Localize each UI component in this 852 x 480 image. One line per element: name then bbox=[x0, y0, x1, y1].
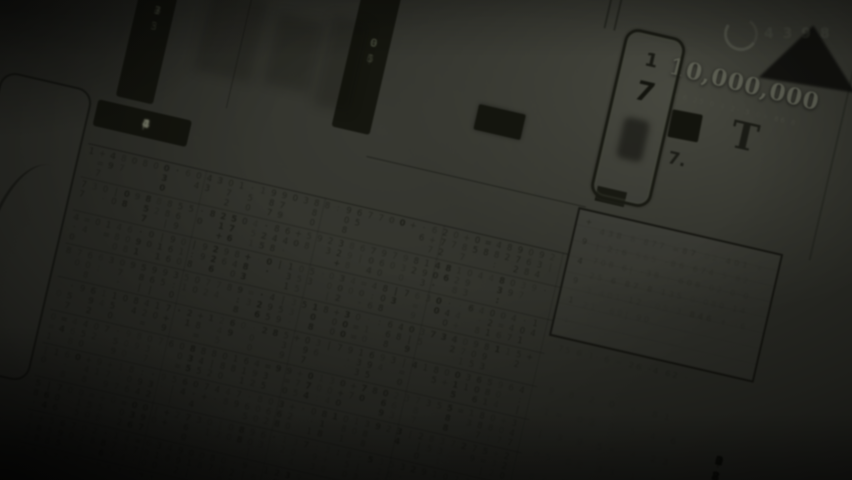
noise-glyph: 3 bbox=[555, 433, 577, 447]
noise-glyph: 33 bbox=[595, 465, 630, 480]
noise-glyph: 4 bbox=[629, 450, 651, 464]
noise-glyph: 080 bbox=[702, 298, 733, 313]
crescent-logo-icon bbox=[721, 14, 760, 53]
noise-glyph: 0·0 bbox=[729, 288, 752, 302]
noise-glyph: 87 bbox=[624, 279, 648, 293]
noise-glyph: 438 bbox=[599, 227, 632, 243]
noise-glyph: 401 bbox=[725, 257, 758, 273]
noise-glyph: 4 bbox=[764, 26, 783, 42]
faint-table-continuation: 9 8 2 0 + 81 1= 03 1 5 4 6| 3 9 5= 4 23 … bbox=[517, 380, 697, 480]
box-faint-content: 438 8 877 =87 02 401 + | 2:6 565 ·86 674… bbox=[577, 224, 769, 368]
noise-glyph: 4 bbox=[649, 432, 671, 446]
vertical-headline-strip-left: 13 21 · 45 5 +· 3 88 7 bbox=[116, 0, 198, 105]
noise-glyph: ·05 bbox=[649, 301, 678, 316]
noise-glyph: ·38 bbox=[640, 268, 669, 283]
noise-glyph: 1 bbox=[563, 295, 576, 317]
noise-glyph: + bbox=[755, 264, 766, 275]
section-rule bbox=[366, 156, 585, 208]
curve-line bbox=[0, 153, 65, 280]
noise-glyph: 5= bbox=[596, 442, 632, 459]
noise-glyph: 9 bbox=[575, 438, 597, 452]
noise-glyph: 2:6 bbox=[606, 245, 636, 260]
black-square-mark bbox=[667, 109, 703, 142]
ink-blob bbox=[616, 116, 651, 163]
noise-glyph: 14 bbox=[731, 304, 749, 316]
video-frame: 13 21 · 45 5 +· 3 88 7 2 6 04 ·| 0 65 :1… bbox=[0, 0, 852, 480]
noise-glyph: 401 bbox=[598, 289, 629, 304]
noise-glyph: 7 bbox=[139, 110, 154, 138]
watermark-text-blocks: 4 3 9 8 bbox=[764, 26, 830, 42]
noise-glyph: 03 bbox=[576, 415, 611, 432]
noise-glyph: 9 bbox=[547, 386, 569, 400]
faint-headline-block bbox=[262, 13, 325, 94]
noise-glyph: + bbox=[581, 217, 594, 239]
stock-listing-table: 1 +=7 49 87 0 8 0 030 · 6 04 43 3 072 1 … bbox=[18, 143, 568, 480]
noise-glyph: 25 bbox=[588, 271, 611, 285]
noise-glyph: 846 bbox=[688, 310, 721, 326]
t-mark: T bbox=[727, 116, 762, 158]
noise-glyph: 3 bbox=[783, 26, 802, 42]
noise-glyph: 81 bbox=[650, 410, 676, 425]
noise-glyph: 0 bbox=[564, 233, 577, 255]
noise-glyph: 1= bbox=[542, 407, 578, 424]
noise-glyph: 26 bbox=[628, 360, 649, 373]
noise-glyph: 2 bbox=[587, 395, 609, 409]
noise-glyph: 877 bbox=[643, 238, 674, 253]
noise-glyph: 708 bbox=[592, 257, 623, 272]
badge-digit-bottom: 7 bbox=[630, 75, 658, 109]
double-column-rule bbox=[604, 0, 638, 31]
noise-glyph: 1 bbox=[628, 472, 650, 480]
broadcaster-watermark: 4 3 9 8 bbox=[724, 16, 834, 52]
noise-glyph: 62 bbox=[664, 369, 685, 382]
noise-glyph: 12 bbox=[627, 296, 650, 310]
noise-glyph: · bbox=[683, 373, 688, 384]
noise-glyph: 25 bbox=[692, 96, 711, 108]
badge-digit-top: 1 bbox=[642, 48, 660, 72]
noise-glyph: 82 bbox=[528, 472, 562, 480]
noise-glyph: =87 bbox=[672, 244, 706, 260]
faint-headline-block bbox=[194, 0, 270, 83]
noise-glyph: 8 bbox=[790, 119, 796, 129]
noise-glyph: 608 bbox=[677, 276, 710, 292]
noise-glyph: 82 bbox=[734, 274, 752, 286]
noise-glyph: 9 bbox=[801, 26, 820, 42]
noise-glyph: 6| bbox=[621, 263, 642, 276]
noise-glyph: 8 bbox=[567, 391, 589, 405]
black-chip bbox=[473, 104, 526, 140]
noise-glyph: 90 bbox=[635, 313, 653, 325]
noise-glyph: 60| bbox=[608, 307, 637, 322]
noise-glyph: 9 bbox=[568, 275, 581, 297]
section-header-badge: 1 | 4 0 4 7 bbox=[92, 99, 192, 147]
small-number-mark: 7. bbox=[666, 148, 688, 172]
noise-glyph: + bbox=[628, 405, 652, 420]
noise-glyph: ·86 bbox=[664, 258, 694, 273]
noise-glyph: 23 bbox=[649, 455, 675, 470]
noise-glyph: 08 bbox=[698, 451, 736, 480]
noise-glyph: 82 bbox=[564, 458, 598, 475]
noise-glyph: ·6 bbox=[734, 320, 749, 332]
noise-glyph: 565 bbox=[635, 251, 666, 266]
noise-glyph: 5 bbox=[18, 444, 28, 475]
noise-glyph: 2 bbox=[568, 216, 581, 235]
noise-glyph: 05 bbox=[532, 450, 566, 467]
noise-glyph: 674 bbox=[692, 264, 723, 279]
noise-glyph: 5 bbox=[629, 427, 651, 441]
noise-glyph: 9 bbox=[577, 236, 590, 258]
noise-glyph: 02 bbox=[708, 283, 731, 297]
noise-glyph: 4 bbox=[572, 256, 585, 278]
noise-glyph: 86 bbox=[773, 115, 792, 127]
noise-glyph: 21: bbox=[582, 300, 611, 315]
noise-glyph: : bbox=[561, 314, 572, 326]
newspaper-page: 13 21 · 45 5 +· 3 88 7 2 6 04 ·| 0 65 :1… bbox=[0, 0, 852, 480]
noise-glyph: 0 bbox=[608, 400, 631, 415]
noise-glyph: 135 bbox=[660, 288, 691, 303]
noise-glyph: 75 bbox=[557, 344, 577, 357]
noise-glyph: 02 bbox=[703, 252, 726, 266]
noise-glyph: 8 bbox=[820, 26, 830, 42]
